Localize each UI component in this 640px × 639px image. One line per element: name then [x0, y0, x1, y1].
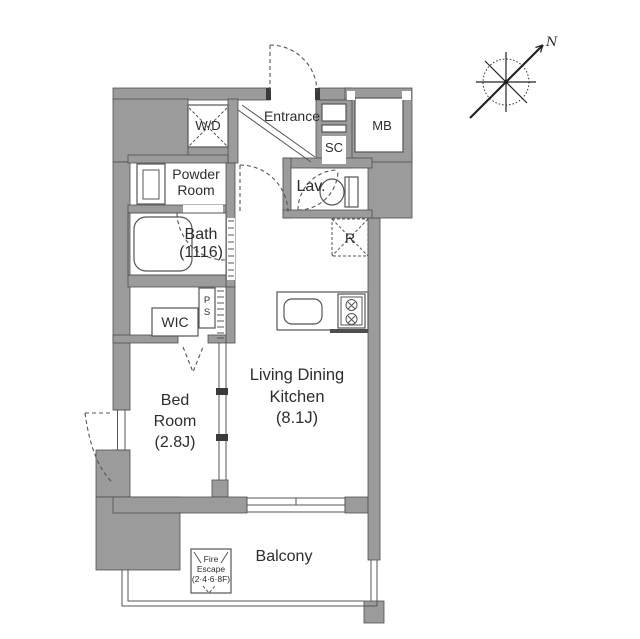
bedroom-label-2: Room	[154, 413, 197, 430]
fire-escape-label-3: (2·4·6·8F)	[192, 574, 230, 584]
fire-escape-label-2: Escape	[197, 564, 226, 574]
shoe-closet-shelf-top	[322, 104, 346, 121]
wic-label: WIC	[161, 314, 188, 330]
floor-plan-drawing: N W/D Entrance SC MB Powder Room Lav. Ba…	[0, 0, 640, 639]
kitchen-sink	[284, 299, 322, 324]
bath-label-2: (1116)	[179, 244, 223, 261]
kitchen-counter	[277, 292, 368, 333]
shoe-closet-label: SC	[325, 140, 343, 155]
powder-room-label-2: Room	[177, 182, 214, 198]
meter-box-label: MB	[372, 118, 392, 133]
bath-label-1: Bath	[185, 226, 218, 243]
stove	[338, 294, 365, 328]
shoe-closet-shelf-mid	[322, 125, 346, 132]
washer-dryer-label: W/D	[195, 118, 220, 133]
ldk-label-1: Living Dining	[250, 366, 344, 384]
entrance-label: Entrance	[264, 108, 320, 124]
floor-plan-page: N W/D Entrance SC MB Powder Room Lav. Ba…	[0, 0, 640, 639]
bedroom-label-1: Bed	[161, 392, 189, 409]
ldk-label-2: Kitchen	[269, 388, 324, 406]
entrance-door-jamb-right	[315, 88, 320, 100]
toilet	[320, 177, 358, 207]
refrigerator-label: R	[345, 230, 355, 246]
lavatory-label: Lav.	[296, 178, 325, 195]
compass-north-label: N	[545, 35, 558, 50]
balcony-label: Balcony	[256, 548, 313, 565]
pipe-space-label-2: S	[204, 307, 210, 318]
pipe-space-label-1: P	[204, 295, 210, 306]
powder-room-label-1: Powder	[172, 166, 220, 182]
counter-edge-bar	[330, 329, 368, 333]
bedroom-window	[113, 410, 130, 450]
bedroom-label-3: (2.8J)	[155, 434, 196, 451]
fire-escape-label-1: Fire	[204, 554, 219, 564]
ldk-label-3: (8.1J)	[276, 409, 318, 427]
balcony-sliding-window	[247, 497, 345, 513]
